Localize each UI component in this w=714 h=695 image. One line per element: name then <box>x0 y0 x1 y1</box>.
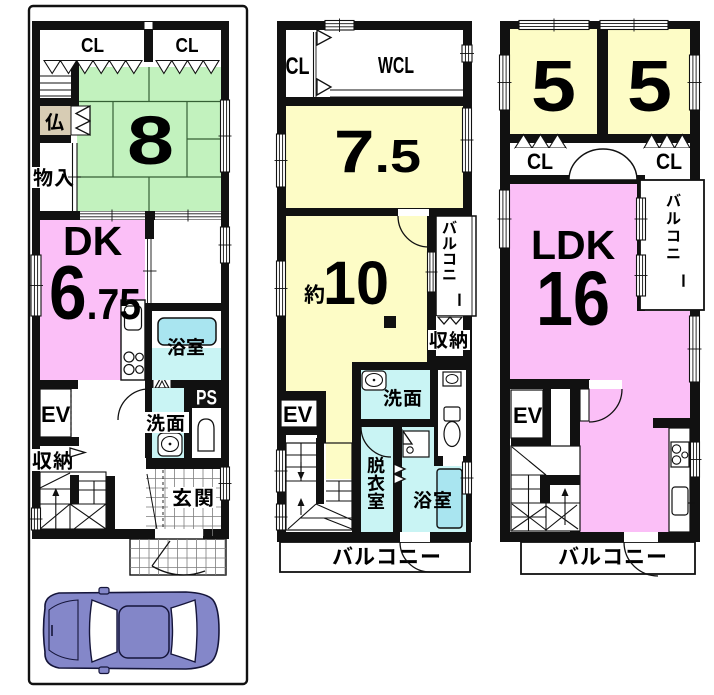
svg-text:CL: CL <box>286 53 310 80</box>
svg-text:8: 8 <box>127 102 174 179</box>
svg-text:5: 5 <box>531 47 576 127</box>
svg-text:5: 5 <box>627 47 672 127</box>
svg-text:CL: CL <box>527 149 553 174</box>
svg-text:CL: CL <box>656 149 682 174</box>
svg-text:EV: EV <box>283 402 313 427</box>
svg-text:WCL: WCL <box>378 52 414 78</box>
svg-text:16: 16 <box>536 256 610 342</box>
svg-text:EV: EV <box>41 402 71 427</box>
svg-text:PS: PS <box>196 387 217 410</box>
svg-text:CL: CL <box>176 35 199 57</box>
svg-text:CL: CL <box>81 35 104 57</box>
svg-text:EV: EV <box>513 403 543 428</box>
svg-text:10: 10 <box>323 249 389 317</box>
